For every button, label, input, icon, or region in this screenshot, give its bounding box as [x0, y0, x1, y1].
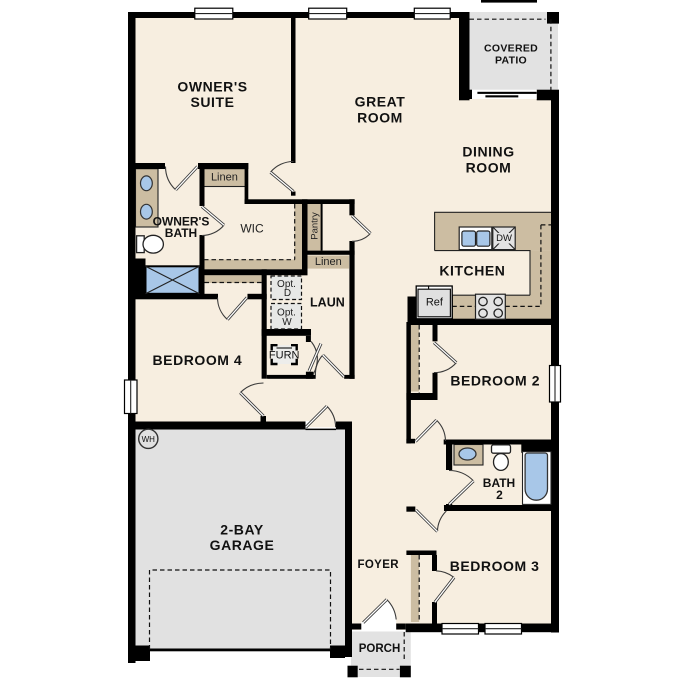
svg-text:DW: DW	[496, 233, 512, 244]
svg-text:Ref: Ref	[426, 297, 444, 309]
svg-text:GREAT: GREAT	[355, 94, 406, 110]
svg-text:PATIO: PATIO	[495, 55, 527, 67]
svg-text:2-BAY: 2-BAY	[220, 522, 264, 538]
svg-text:GARAGE: GARAGE	[210, 537, 275, 553]
svg-text:PORCH: PORCH	[359, 643, 401, 655]
svg-text:KITCHEN: KITCHEN	[439, 263, 505, 279]
svg-text:BEDROOM 3: BEDROOM 3	[450, 558, 540, 574]
svg-text:OWNER'S: OWNER'S	[177, 79, 247, 95]
svg-text:BATH: BATH	[165, 226, 197, 240]
svg-text:LAUN: LAUN	[310, 296, 345, 310]
svg-text:WIC: WIC	[240, 221, 264, 235]
svg-text:Linen: Linen	[315, 256, 342, 268]
svg-text:COVERED: COVERED	[484, 43, 538, 55]
svg-text:ROOM: ROOM	[357, 110, 403, 126]
svg-text:ROOM: ROOM	[466, 160, 512, 176]
svg-text:BEDROOM 2: BEDROOM 2	[450, 373, 540, 389]
svg-text:DINING: DINING	[462, 144, 514, 160]
svg-text:D: D	[284, 288, 291, 299]
svg-text:2: 2	[496, 488, 503, 502]
svg-text:Pantry: Pantry	[309, 212, 320, 240]
svg-text:FURN: FURN	[269, 350, 300, 362]
svg-text:WH: WH	[142, 435, 156, 444]
svg-text:SUITE: SUITE	[191, 94, 235, 110]
svg-text:Linen: Linen	[211, 172, 238, 184]
svg-text:W: W	[282, 317, 292, 328]
svg-text:FOYER: FOYER	[358, 559, 400, 571]
svg-text:BEDROOM 4: BEDROOM 4	[153, 352, 243, 368]
